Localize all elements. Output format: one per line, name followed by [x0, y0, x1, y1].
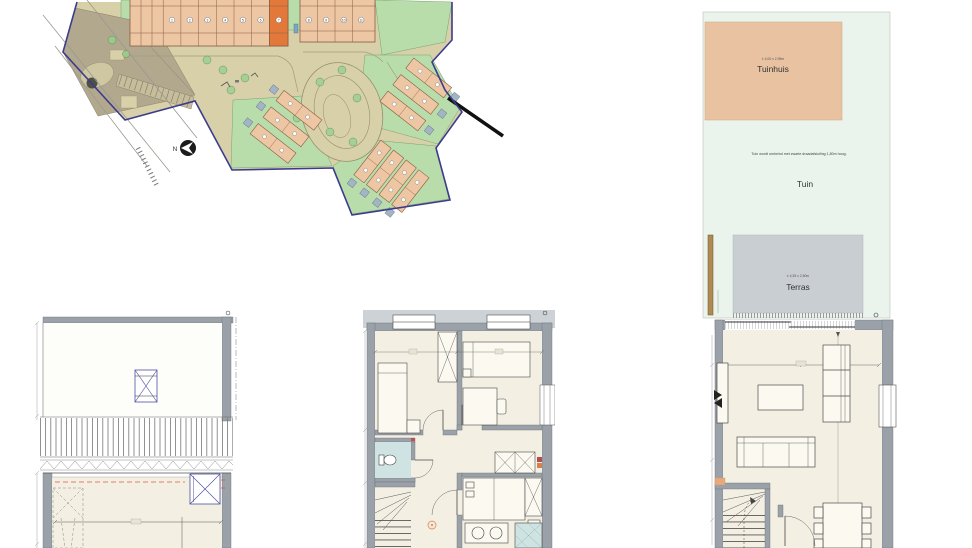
marker-circle	[226, 311, 230, 315]
wardrobe	[438, 332, 457, 382]
terras-label: Terras	[786, 282, 810, 292]
sliding-door	[725, 320, 855, 330]
unit-number: 3	[207, 18, 209, 22]
double-sink	[465, 523, 508, 543]
dining-table	[814, 503, 871, 548]
cabinet	[823, 345, 850, 422]
north-label: N	[173, 146, 178, 153]
unit-number: 10	[342, 18, 346, 22]
tuinhuis-label: Tuinhuis	[757, 64, 789, 74]
tuin-label: Tuin	[797, 179, 813, 189]
unit-number: 1	[171, 18, 173, 22]
roof-window	[190, 474, 220, 504]
fence-note: Tuin wordt omheind met zwarte draadafslu…	[751, 152, 846, 156]
window	[879, 385, 896, 427]
laundry-closet	[463, 478, 525, 520]
attic-floor-plan	[35, 310, 240, 548]
first-floor-plan	[363, 310, 555, 548]
unit-number: 2	[189, 18, 191, 22]
bed	[463, 342, 530, 377]
tuinhuis-dimension: ± 4,00 x 2,95m	[762, 57, 785, 61]
unit-number: 6	[260, 18, 262, 22]
window	[540, 385, 555, 425]
fence-post	[708, 235, 713, 315]
nightstand	[407, 420, 420, 433]
shower	[515, 523, 542, 548]
sofa	[737, 437, 815, 467]
garden-and-ground-floor-plan: ± 4,00 x 2,95m Tuinhuis Tuin wordt omhei…	[690, 0, 902, 548]
tree-icon	[108, 36, 116, 44]
highlighted-unit	[269, 0, 288, 46]
unit-number: 5	[242, 18, 244, 22]
ladder-strip	[138, 148, 157, 186]
terraced-houses-block-a: 1 2 3 4 5 6 7	[130, 0, 288, 46]
garden-plan: ± 4,00 x 2,95m Tuinhuis Tuin wordt omhei…	[703, 12, 890, 318]
bed	[378, 363, 407, 433]
toilet-icon	[379, 455, 396, 465]
meter-marker	[715, 478, 725, 485]
terras-dimension: ± 4,35 x 2,50m	[787, 274, 810, 278]
zigzag-band	[40, 460, 233, 470]
coffee-table	[758, 385, 803, 410]
drawing-canvas: 1 2 3 4 5 6 7 8 9 10 11	[0, 0, 972, 548]
terraced-houses-block-b: 8 9 10 11	[294, 0, 375, 42]
north-arrow-icon: N	[173, 140, 196, 156]
roof-window	[135, 370, 157, 402]
wardrobe	[525, 478, 542, 516]
unit-number: 4	[224, 18, 226, 22]
roof-hatch	[40, 417, 233, 457]
ground-floor-plan	[710, 313, 896, 548]
unit-number: 11	[359, 18, 363, 22]
unit-number: 8	[308, 18, 310, 22]
site-plan: 1 2 3 4 5 6 7 8 9 10 11	[35, 0, 510, 232]
unit-number: 7	[278, 18, 280, 22]
lamp-icon	[428, 521, 436, 529]
unit-number: 9	[325, 18, 327, 22]
wardrobe	[495, 452, 535, 473]
